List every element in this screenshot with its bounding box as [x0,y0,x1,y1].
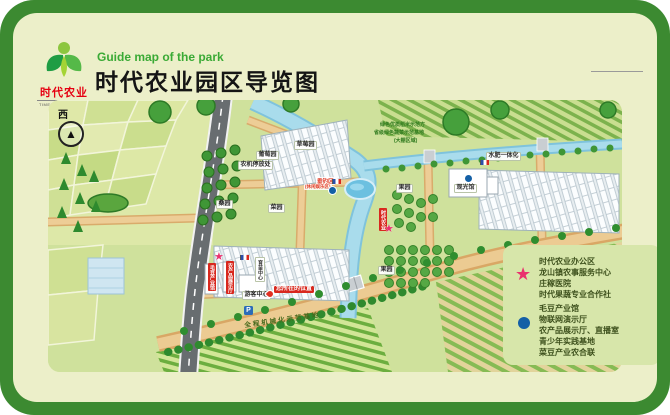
orchard-label-1: 果园 [396,184,413,193]
page-title: 时代农业园区导览图 [95,63,320,97]
demo-field-note-2: 省级绿色蔬菜示范基地 [374,129,424,136]
star-marker-icon: ★ [384,224,394,235]
legend-dot-item: 菜豆产业农合联 [539,347,595,358]
edamame-hall-label: 毛豆产业馆 [208,263,216,291]
legend-star-item: 时代果蔬专业合作社 [539,289,611,300]
legend-dot-icon [518,317,530,329]
mulberry-garden-label: 桑园 [216,200,233,209]
legend-star-item: 龙山镇农事服务中心 [539,267,611,278]
star-marker-icon: ★ [214,252,224,263]
flag-icon [332,179,341,184]
flag-icon [240,255,249,260]
subtitle: Guide map of the park [97,50,224,64]
compass-icon: ▲ [58,121,84,147]
legend-star-item: 庄稼医院 [539,278,571,289]
legend-dot-item: 农产品展示厅、直播室 [539,325,619,336]
poster-inner: 时代农业 TIMES AGRICULTURE Guide map of the … [13,13,657,402]
parking-icon: P [244,306,253,315]
legend-dot-item: 毛豆产业馆 [539,303,579,314]
compass: 西 ▲ [58,106,84,147]
produce-hall-label: 农产品展示厅 [226,261,234,294]
you-are-here-label: 您所在的位置 [274,286,314,293]
machinery-parking-label: 农机停放处 [238,161,273,170]
fertigation-label: 水肥一体化 [486,152,521,161]
logo-emblem-icon [37,39,91,79]
strawberry-garden-label: 草莓园 [294,141,317,150]
header-divider [591,71,643,72]
demo-field-note-3: (大棚区域) [394,137,417,144]
legend: ★ 时代农业办公区 龙山镇农事服务中心 庄稼医院 时代果蔬专业合作社 毛豆产业馆… [503,245,657,365]
legend-dot-item: 青少年实践基地 [539,336,595,347]
grape-garden-label: 葡萄园 [256,151,279,160]
demo-field-note-1: 绿色优质稻米示范方 [380,121,425,128]
nursery-center-label: 育苗中心 [255,257,265,282]
sightseeing-hall-label: 观光馆 [454,184,477,193]
dot-marker-icon [328,186,337,195]
legend-star-item: 时代农业办公区 [539,256,595,267]
legend-dot-item: 物联网演示厅 [539,314,587,325]
logo: 时代农业 TIMES AGRICULTURE [37,39,91,107]
vegetable-garden-label: 菜园 [268,204,285,213]
legend-star-icon: ★ [515,265,531,283]
poster-frame: 时代农业 TIMES AGRICULTURE Guide map of the … [0,0,670,415]
dot-marker-icon [464,174,473,183]
orchard-label-2: 果园 [378,266,395,275]
flag-icon [480,160,489,165]
fishing-pond [345,179,375,199]
logo-cn-text: 时代农业 [37,84,91,100]
compass-west-label: 西 [58,106,84,121]
